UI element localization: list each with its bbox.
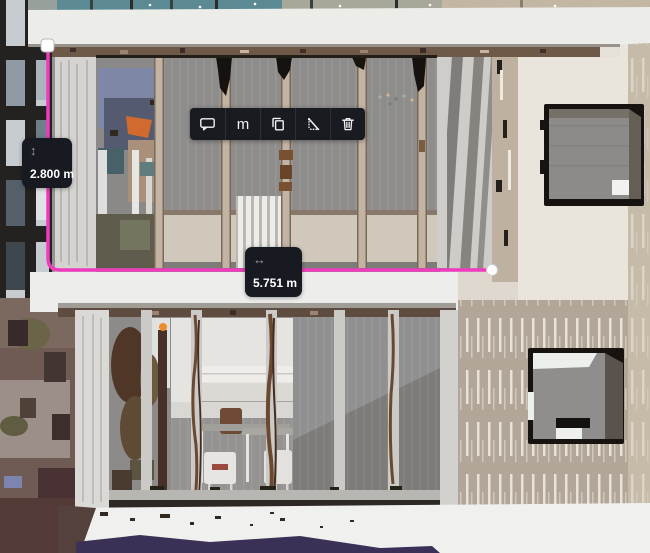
scan-marker-dot[interactable]	[159, 323, 167, 331]
upper-floor-slab	[28, 7, 650, 57]
upper-floor-facade	[52, 55, 447, 272]
horizontal-arrows-icon: ↔	[253, 254, 296, 266]
lower-interior-dark-region	[109, 317, 171, 502]
horizontal-measurement-label[interactable]: ↔ 5.751 m	[245, 247, 302, 297]
trash-icon	[340, 116, 356, 132]
measurement-toolbar: m	[190, 108, 365, 140]
vertical-arrows-icon: ↕	[30, 145, 66, 157]
copy-button[interactable]	[260, 108, 295, 140]
lower-wall-window	[528, 348, 624, 444]
scan-viewer[interactable]: ↕ 2.800 m ↔ 5.751 m m	[0, 0, 650, 553]
lower-floor-facade	[75, 310, 458, 508]
scan-scene[interactable]	[0, 0, 650, 553]
vertical-measurement-label[interactable]: ↕ 2.800 m	[22, 138, 72, 188]
measurement-handle-right[interactable]	[487, 265, 498, 276]
unit-button[interactable]: m	[225, 108, 260, 140]
upper-wall-window	[540, 104, 644, 206]
copy-icon	[270, 116, 286, 132]
right-wall	[438, 0, 650, 553]
ground-band	[58, 503, 650, 553]
horizontal-measurement-value: 5.751 m	[253, 277, 296, 290]
vertical-measurement-value: 2.800 m	[30, 168, 66, 181]
measurement-handle-top[interactable]	[41, 39, 54, 52]
diagonal-measure-icon	[305, 116, 321, 132]
delete-button[interactable]	[330, 108, 365, 140]
comment-button[interactable]	[190, 108, 225, 140]
diagonal-measure-button[interactable]	[295, 108, 330, 140]
unit-label: m	[237, 117, 250, 132]
comment-icon	[199, 116, 216, 132]
